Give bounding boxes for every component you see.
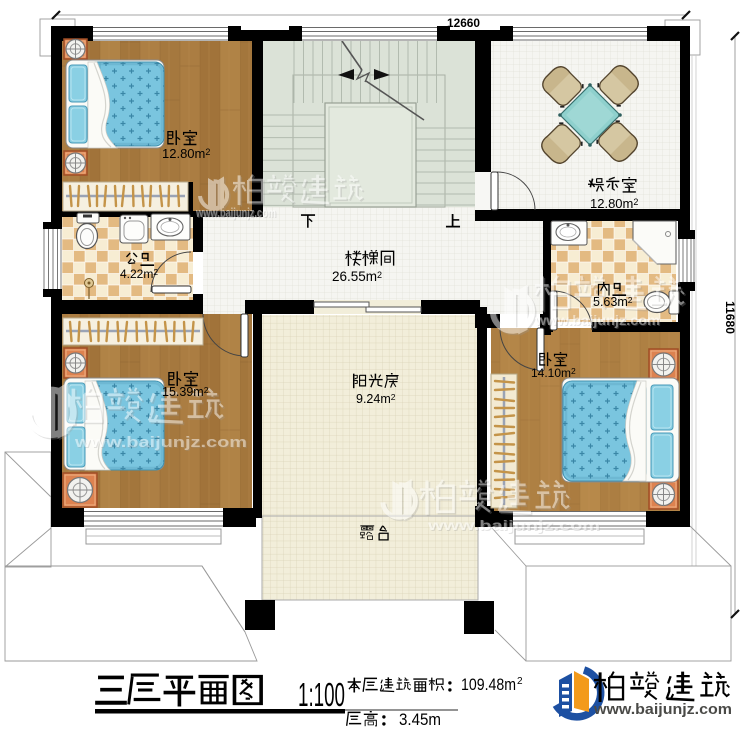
svg-text:2: 2 [517,676,523,687]
svg-text:www.baijunjz.com: www.baijunjz.com [593,702,732,718]
svg-text:3.45m: 3.45m [399,711,441,729]
svg-text:9.24m2: 9.24m2 [356,392,396,406]
svg-text:12660: 12660 [447,16,480,30]
svg-text:1:100: 1:100 [298,676,345,713]
svg-text:12.80m2: 12.80m2 [162,146,210,161]
svg-text:12.80m2: 12.80m2 [590,196,638,211]
svg-text:4.22m2: 4.22m2 [120,267,158,281]
svg-text:26.55m2: 26.55m2 [332,269,382,284]
svg-text:5.63m2: 5.63m2 [593,295,633,309]
svg-text:14.10m2: 14.10m2 [531,366,576,380]
svg-text:15.39m2: 15.39m2 [162,385,209,399]
svg-text:109.48m: 109.48m [461,676,516,694]
svg-text:11680: 11680 [723,301,737,334]
svg-text:www.baijunjz.com: www.baijunjz.com [195,205,276,220]
svg-text:www.baijunjz.com: www.baijunjz.com [534,312,660,328]
svg-text:www.baijunjz.com: www.baijunjz.com [74,434,247,451]
svg-text:www.baijunjz.com: www.baijunjz.com [427,517,600,533]
